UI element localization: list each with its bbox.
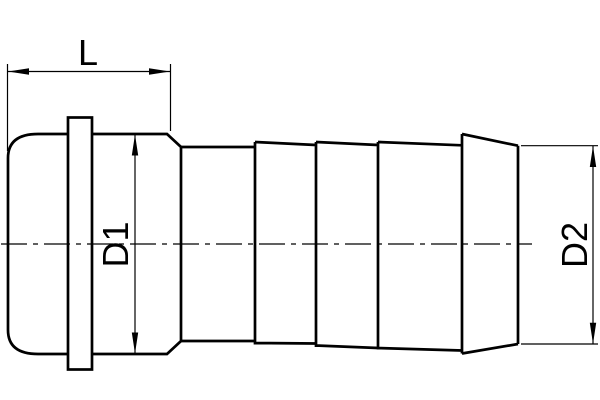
arrowhead-down-icon	[590, 323, 596, 344]
technical-drawing-canvas: L D1 D2	[0, 0, 600, 400]
arrowhead-right-icon	[149, 68, 170, 74]
dimension-label-diameter-tail: D2	[554, 222, 595, 268]
arrowhead-left-icon	[8, 68, 29, 74]
arrowhead-down-icon	[132, 333, 138, 354]
drawing-page: L D1 D2	[0, 0, 600, 400]
dimension-diameter-tail: D2	[521, 146, 598, 344]
dimension-diameter-cap: D1	[95, 135, 138, 354]
dimension-label-diameter-cap: D1	[95, 221, 136, 267]
arrowhead-up-icon	[590, 146, 596, 167]
arrowhead-up-icon	[132, 135, 138, 156]
dimension-label-length: L	[78, 32, 98, 73]
